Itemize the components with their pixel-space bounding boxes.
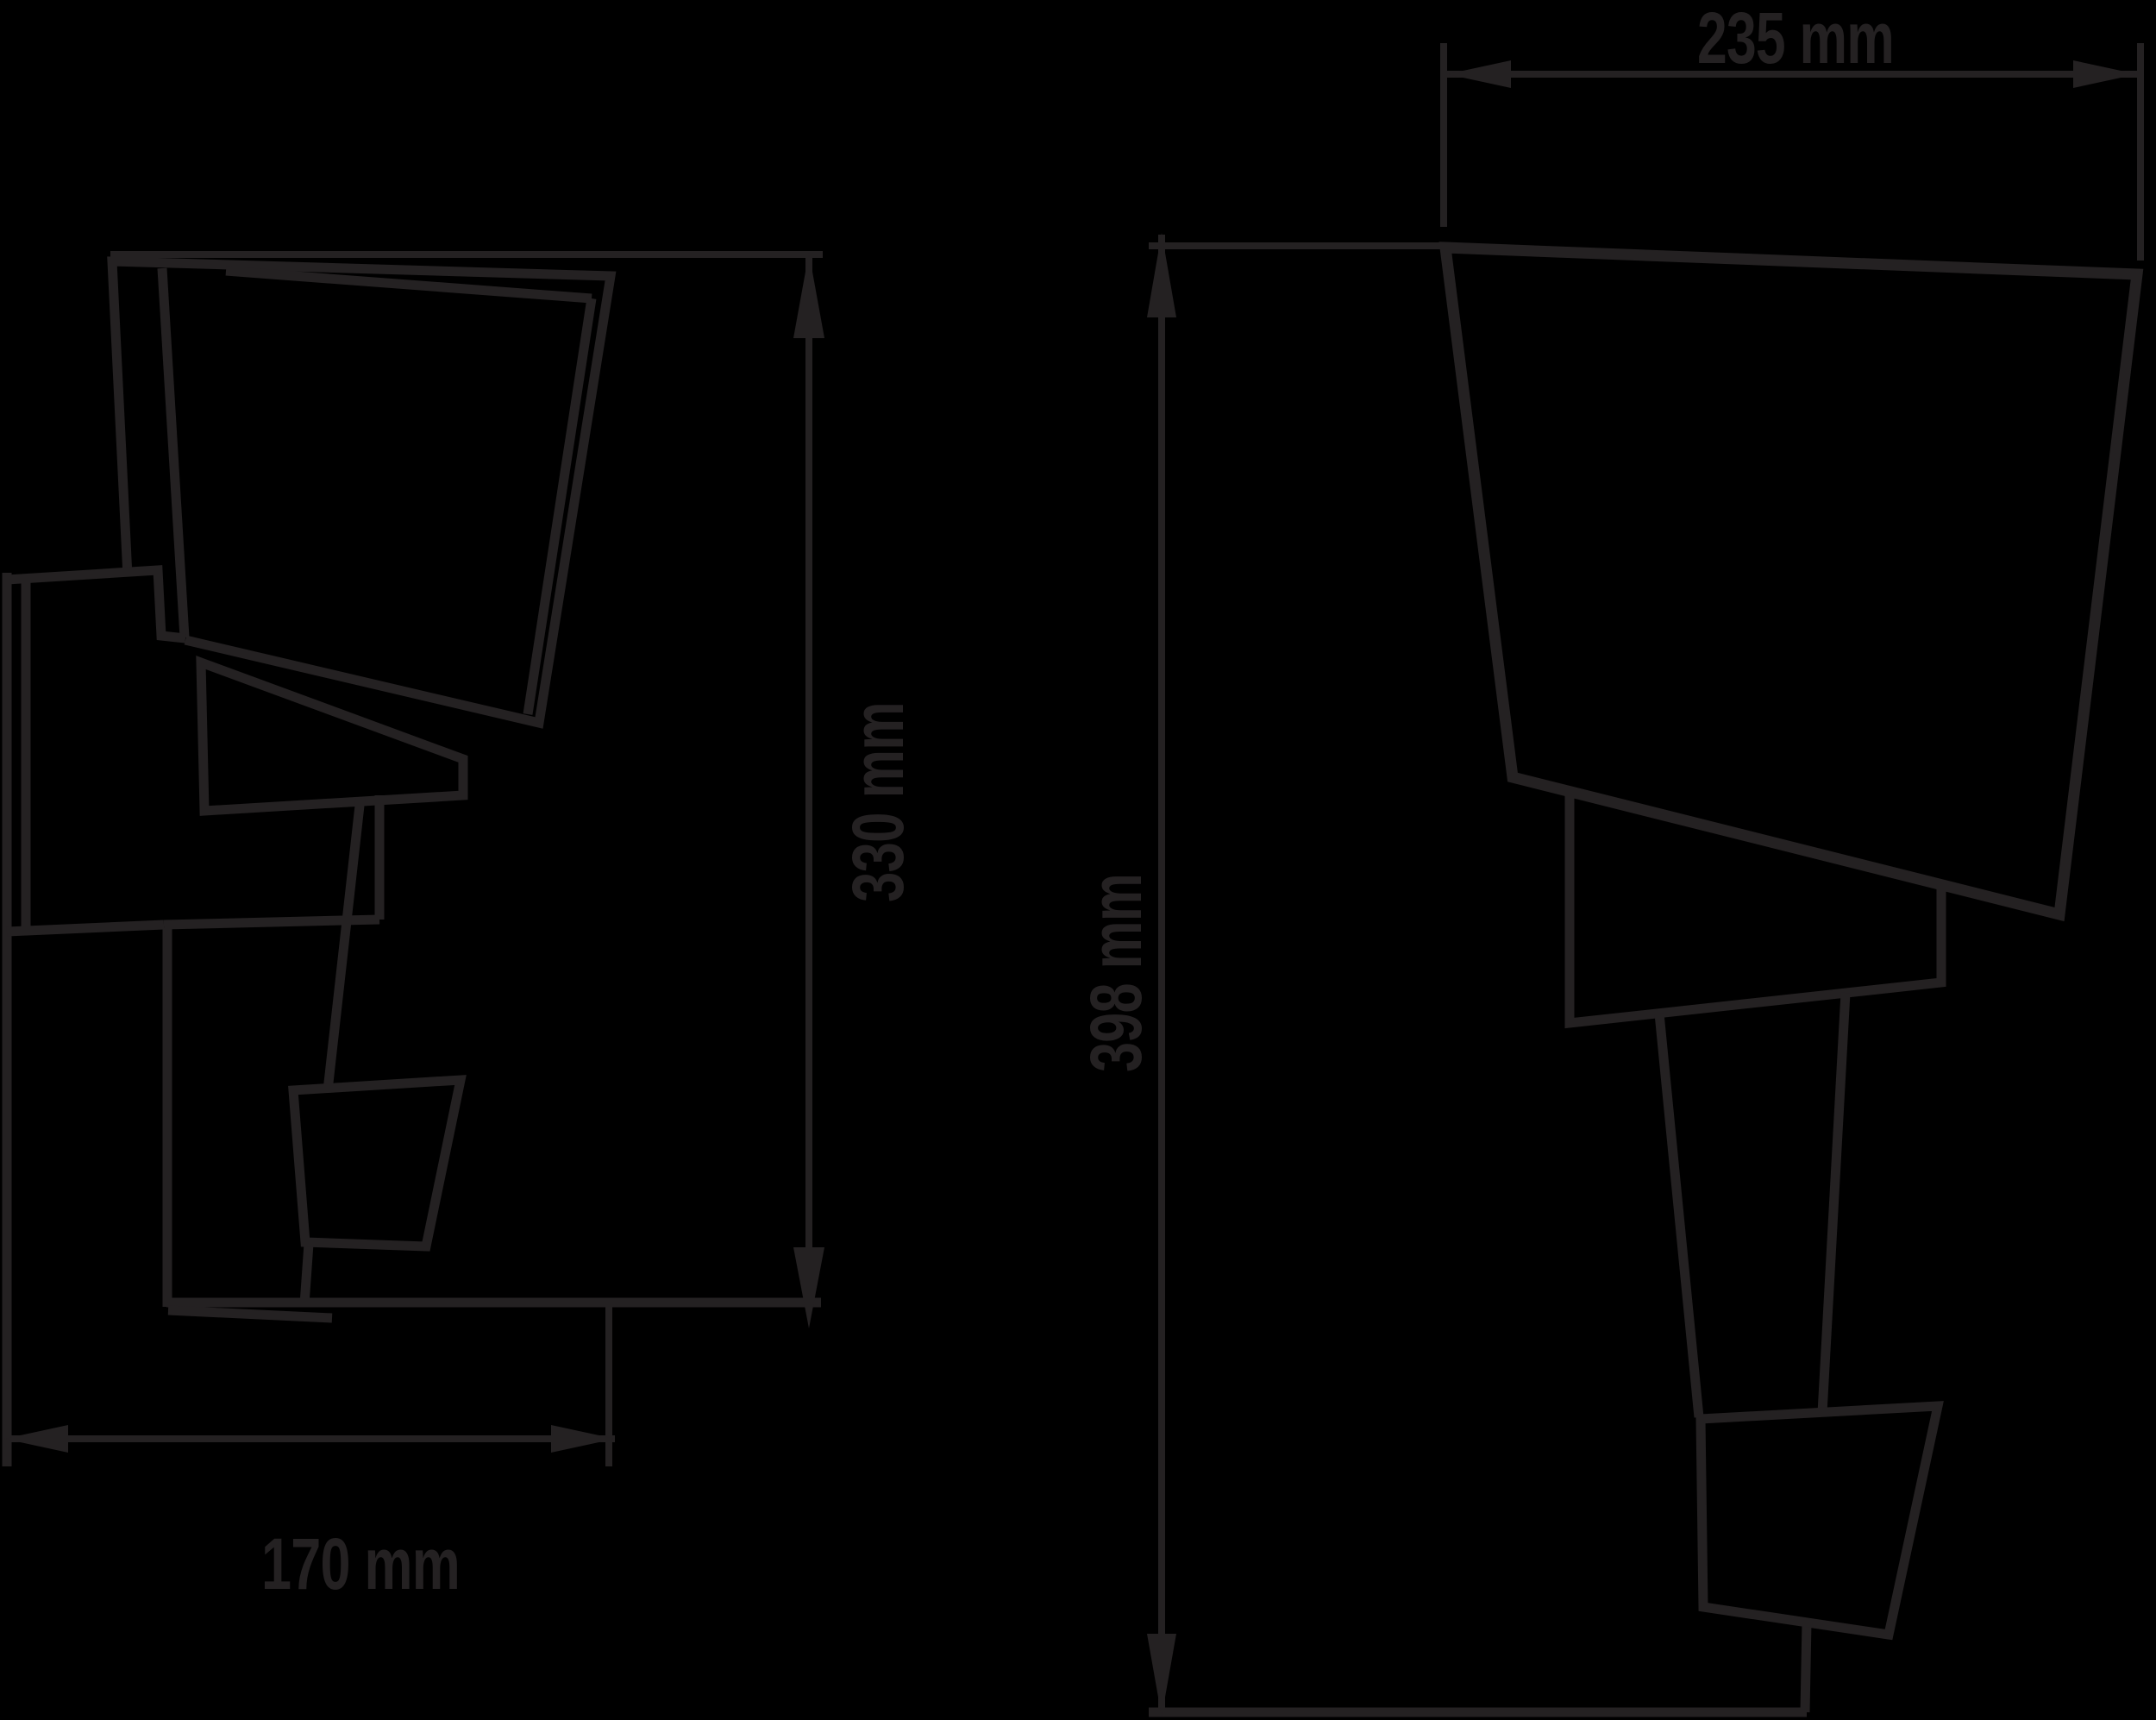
- side-middle-panel: [201, 662, 463, 811]
- front-lower-shade-left-edge: [1659, 1014, 1699, 1417]
- front-wire-lower: [1805, 1623, 1807, 1712]
- front-middle-panel: [1570, 791, 1941, 1023]
- side-bottom-panel: [293, 1080, 461, 1246]
- dim-235-label: 235 mm: [1697, 0, 1894, 78]
- dim-235-arrow-left-icon: [1447, 60, 1511, 88]
- drawing-canvas: 330 mm 170 mm 235 mm 398 mm: [0, 0, 2156, 1720]
- dim-398-label: 398 mm: [1075, 874, 1156, 1072]
- lamp-dimension-drawing: 330 mm 170 mm 235 mm 398 mm: [0, 0, 2156, 1720]
- side-view: [7, 261, 821, 1466]
- dimension-width-front: 235 mm: [1444, 0, 2140, 261]
- dimension-height-side: 330 mm: [110, 253, 918, 1328]
- side-baseline-under-edge: [168, 1310, 332, 1318]
- dim-170-arrow-right-icon: [551, 1425, 615, 1453]
- front-shade-outline: [1445, 248, 2137, 914]
- dim-330-arrow-down-icon: [793, 1247, 824, 1328]
- front-view: [1149, 248, 2137, 1712]
- side-wire-lower: [304, 1244, 309, 1304]
- front-lower-shade-right-edge: [1822, 993, 1846, 1413]
- side-shade-inner-left-edge: [162, 268, 185, 637]
- side-shade-inner-right-edge: [528, 298, 592, 714]
- dimension-depth-side: 170 mm: [4, 1304, 615, 1604]
- dim-330-arrow-up-icon: [793, 253, 824, 338]
- dim-398-arrow-down-icon: [1147, 1634, 1176, 1717]
- dim-235-arrow-right-icon: [2073, 60, 2137, 88]
- dim-170-arrow-left-icon: [4, 1425, 68, 1453]
- front-bottom-panel: [1701, 1406, 1938, 1635]
- side-backplate-top: [7, 570, 185, 638]
- side-wire-upper: [328, 798, 360, 1090]
- dimension-height-front: 398 mm: [1075, 233, 1442, 1717]
- dim-330-label: 330 mm: [837, 702, 918, 902]
- dim-170-label: 170 mm: [261, 1523, 460, 1604]
